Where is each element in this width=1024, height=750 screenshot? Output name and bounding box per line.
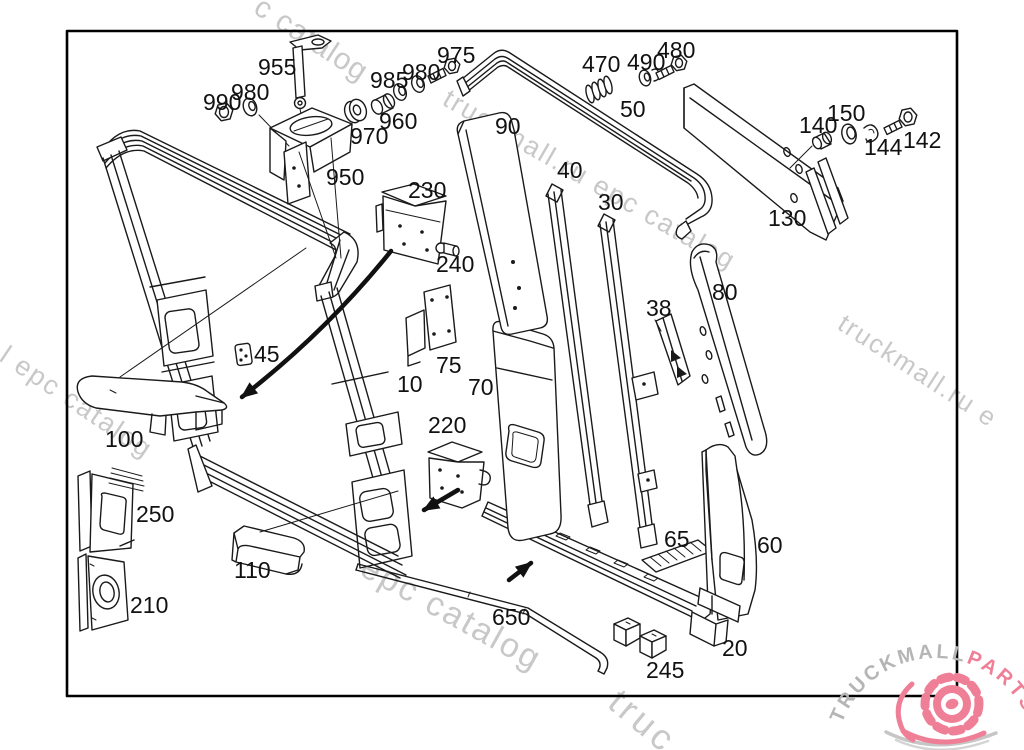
part-label-650: 650 (492, 604, 530, 630)
part-label-240: 240 (436, 251, 474, 277)
part-label-950: 950 (326, 164, 364, 190)
part-label-150: 150 (827, 100, 865, 126)
part-label-230: 230 (408, 177, 446, 203)
part-label-970: 970 (350, 123, 388, 149)
truckmall-parts-logo: TRUCKMALLPARTS (826, 641, 1024, 750)
part-label-30: 30 (598, 189, 624, 215)
part-label-210: 210 (130, 592, 168, 618)
part-label-130: 130 (768, 205, 806, 231)
part-label-100: 100 (105, 426, 143, 452)
part-label-80: 80 (712, 279, 738, 305)
part-label-975: 975 (437, 42, 475, 68)
part-80-drawing (690, 244, 766, 455)
curved-arrow (242, 251, 391, 397)
part-label-110: 110 (234, 557, 271, 583)
part-label-10: 10 (397, 371, 423, 397)
part-150-washer (840, 123, 858, 146)
part-label-245: 245 (646, 657, 684, 683)
part-30-drawing (598, 214, 658, 548)
part-label-20: 20 (722, 635, 748, 661)
part-label-250: 250 (136, 501, 174, 527)
part-label-470: 470 (582, 51, 620, 77)
part-60-drawing (698, 445, 756, 622)
part-label-60: 60 (757, 532, 783, 558)
part-label-50: 50 (620, 96, 646, 122)
part-70-drawing (493, 321, 561, 540)
part-label-40: 40 (557, 157, 583, 183)
part-label-70: 70 (468, 374, 494, 400)
parts-diagram-page: c catalog truckmall.ru epc catalog l epc… (0, 0, 1024, 750)
part-470-bushing (584, 75, 613, 103)
part-label-980b: 980 (402, 59, 440, 85)
part-label-65: 65 (664, 526, 690, 552)
part-38-drawing (655, 314, 690, 385)
part-label-38: 38 (646, 295, 672, 321)
arrow-650 (509, 563, 531, 580)
part-label-45: 45 (254, 341, 280, 367)
part-label-142: 142 (903, 127, 941, 153)
part-label-220: 220 (428, 412, 466, 438)
part-210-drawing (78, 554, 128, 631)
exploded-parts-diagram: c catalog truckmall.ru epc catalog l epc… (0, 0, 1024, 750)
part-130-drawing (684, 84, 848, 240)
watermark-fragment: truckmall.ru e (833, 308, 1004, 433)
part-label-480: 480 (657, 37, 695, 63)
part-label-955: 955 (258, 54, 296, 80)
watermark-fragment: truc (601, 681, 686, 750)
part-220-drawing (428, 442, 490, 508)
part-label-75: 75 (436, 352, 462, 378)
part-245-drawing (614, 618, 666, 658)
part-45-drawing (235, 343, 253, 366)
gear-icon (898, 677, 984, 742)
part-label-980a: 980 (231, 79, 269, 105)
part-250-drawing (78, 468, 144, 552)
part-label-144: 144 (864, 134, 903, 160)
part-label-90: 90 (495, 113, 521, 139)
